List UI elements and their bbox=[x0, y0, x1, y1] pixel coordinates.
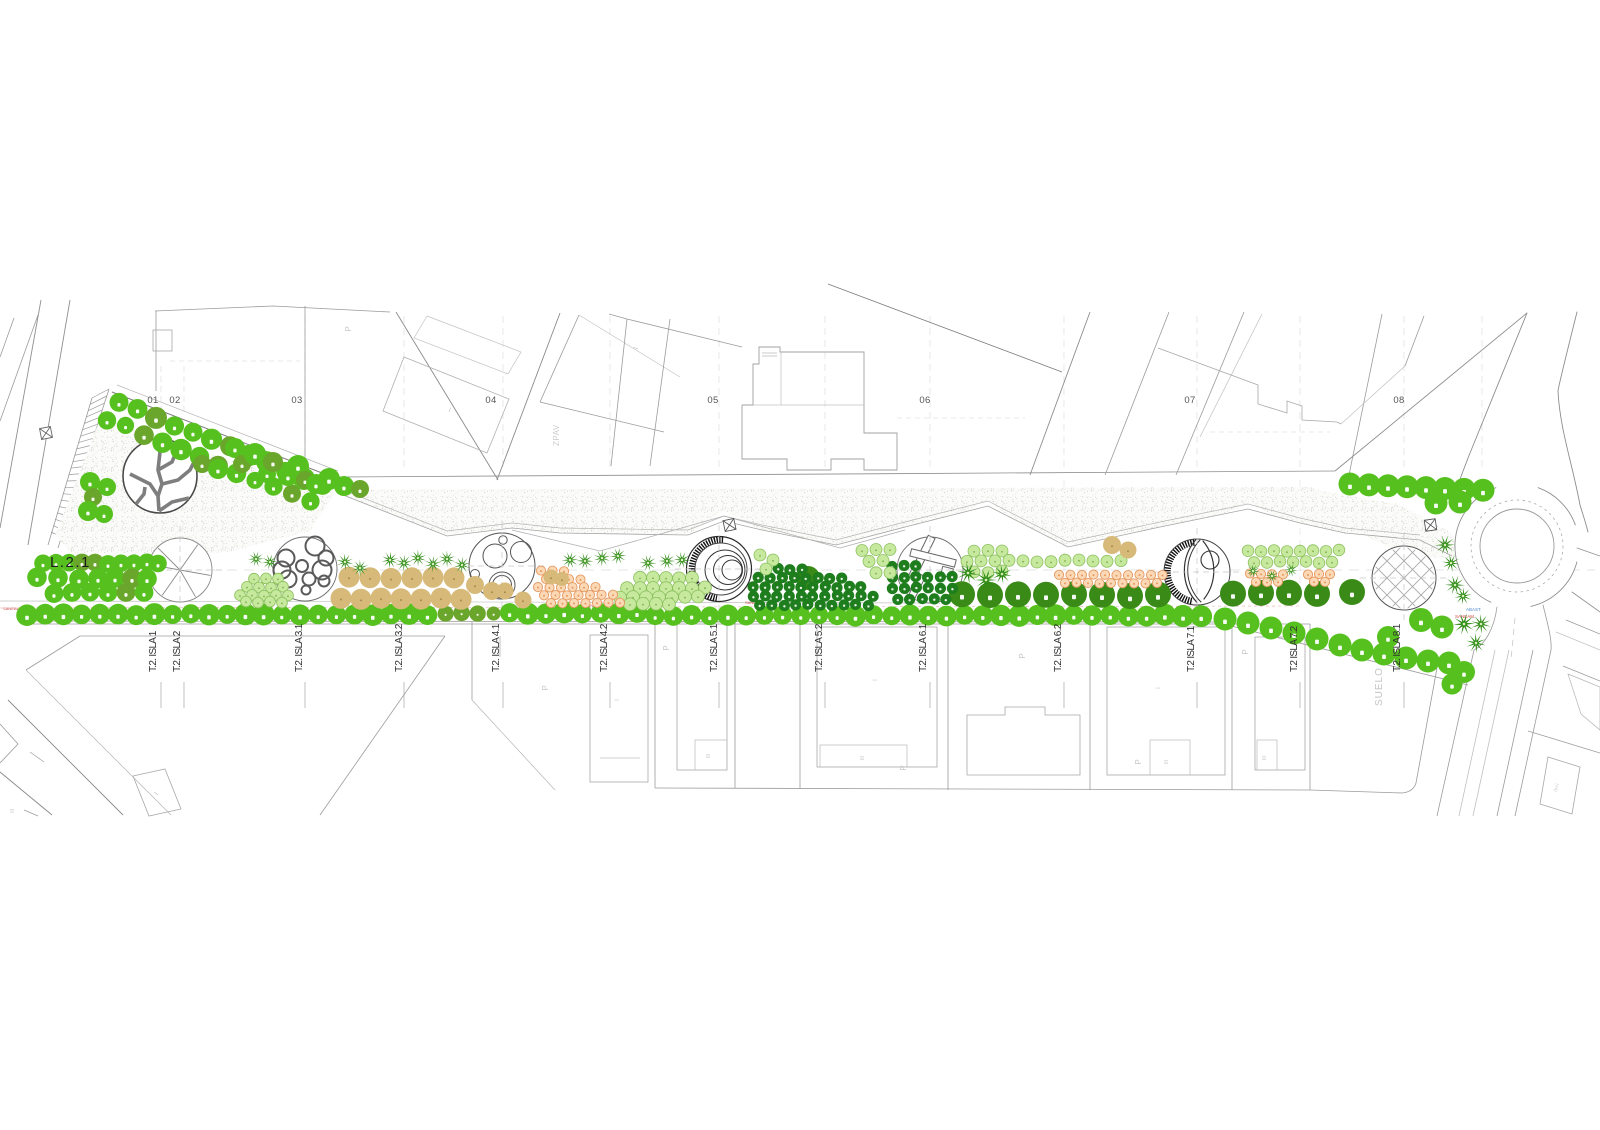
svg-text:P: P bbox=[1241, 649, 1250, 654]
svg-text:ZPAV: ZPAV bbox=[552, 424, 561, 446]
svg-text:P: P bbox=[1134, 759, 1143, 764]
svg-text:T.2. ISLA 1: T.2. ISLA 1 bbox=[148, 630, 159, 672]
svg-text:T.2 ISLA 7.2: T.2 ISLA 7.2 bbox=[1289, 625, 1300, 672]
svg-text:III: III bbox=[10, 809, 16, 813]
svg-text:P: P bbox=[344, 326, 353, 331]
svg-text:III: III bbox=[1262, 756, 1268, 760]
svg-text:T.2. ISLA 3.2: T.2. ISLA 3.2 bbox=[394, 623, 405, 672]
svg-text:04: 04 bbox=[485, 395, 496, 406]
svg-text:P: P bbox=[1018, 653, 1027, 658]
svg-text:T.2. ISLA 3.1: T.2. ISLA 3.1 bbox=[294, 623, 305, 672]
svg-text:07: 07 bbox=[1184, 395, 1195, 406]
svg-text:08: 08 bbox=[1393, 395, 1404, 406]
svg-text:06: 06 bbox=[919, 395, 930, 406]
svg-text:T.2. ISLA 6.1: T.2. ISLA 6.1 bbox=[918, 623, 929, 672]
svg-text:03: 03 bbox=[291, 395, 302, 406]
svg-text:05: 05 bbox=[707, 395, 718, 406]
svg-text:P: P bbox=[662, 645, 671, 650]
svg-text:III: III bbox=[1164, 760, 1170, 764]
svg-text:III: III bbox=[860, 756, 866, 760]
svg-text:T.2. ISLA 4.2: T.2. ISLA 4.2 bbox=[599, 623, 610, 672]
svg-text:T.2. ISLA 5.1: T.2. ISLA 5.1 bbox=[709, 623, 720, 672]
svg-text:III: III bbox=[706, 754, 712, 758]
svg-text:P: P bbox=[899, 765, 908, 770]
svg-text:L.2.1: L.2.1 bbox=[50, 554, 91, 571]
svg-text:T.2. ISLA 8.1: T.2. ISLA 8.1 bbox=[1392, 623, 1403, 672]
svg-text:T.2. ISLA 4.1: T.2. ISLA 4.1 bbox=[491, 623, 502, 672]
svg-text:T.2. ISLA 2: T.2. ISLA 2 bbox=[172, 630, 183, 672]
svg-text:ABAST.: ABAST. bbox=[1466, 607, 1482, 612]
svg-text:01: 01 bbox=[147, 395, 158, 406]
svg-text:P: P bbox=[541, 685, 550, 690]
svg-text:T.2 ISLA 7.1: T.2 ISLA 7.1 bbox=[1186, 625, 1197, 672]
svg-text:SUELO: SUELO bbox=[1374, 667, 1385, 706]
svg-text:T.2. ISLA 5.2: T.2. ISLA 5.2 bbox=[814, 623, 825, 672]
svg-text:T.2. ISLA 6.2: T.2. ISLA 6.2 bbox=[1053, 623, 1064, 672]
svg-text:02: 02 bbox=[169, 395, 180, 406]
